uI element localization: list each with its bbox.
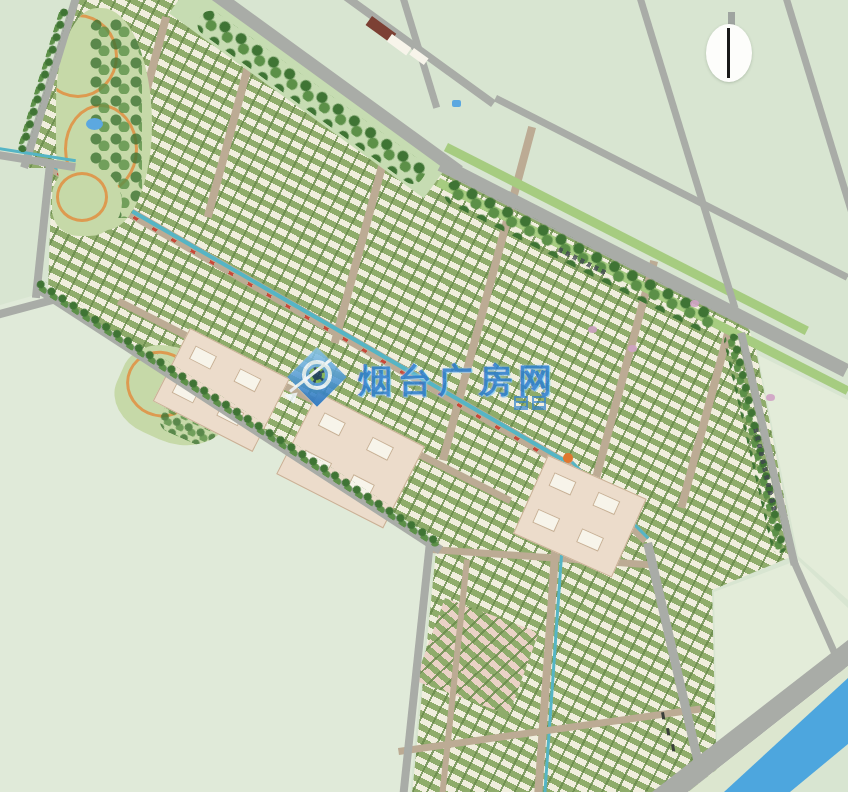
courtyard-building bbox=[576, 528, 604, 551]
site-plan-map: 烟台广房网 bbox=[0, 0, 848, 792]
blue-roof bbox=[452, 100, 461, 107]
courtyard-building bbox=[233, 368, 261, 392]
flowering-tree bbox=[588, 326, 597, 333]
watermark-seal-icon bbox=[514, 396, 528, 410]
canal-head-park bbox=[52, 166, 122, 236]
courtyard-building bbox=[366, 437, 394, 461]
flowering-tree bbox=[628, 345, 637, 352]
watermark-logo-arrow-icon bbox=[282, 388, 297, 403]
flowering-tree bbox=[690, 300, 699, 307]
flowering-tree bbox=[766, 394, 775, 401]
pond bbox=[86, 118, 103, 130]
compass bbox=[698, 10, 754, 88]
courtyard-building bbox=[548, 472, 576, 495]
courtyard-building bbox=[189, 345, 217, 369]
watermark-seal-icon bbox=[532, 396, 546, 410]
courtyard-building bbox=[592, 492, 620, 515]
north-branch-road bbox=[781, 0, 848, 243]
watermark-text: 烟台广房网 bbox=[358, 358, 558, 404]
courtyard-building bbox=[532, 509, 560, 532]
park-path bbox=[56, 172, 108, 222]
north-arrow-needle-icon bbox=[727, 28, 730, 78]
watermark: 烟台广房网 bbox=[282, 346, 582, 424]
